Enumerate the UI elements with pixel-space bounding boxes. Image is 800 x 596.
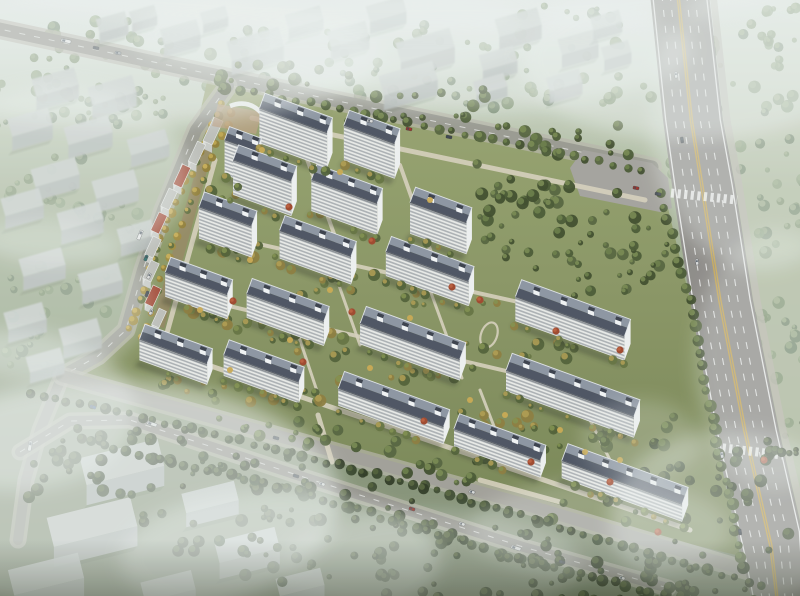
aerial-rendering [0,0,800,596]
rendering-canvas [0,0,800,596]
fog-haze-overlay [0,0,800,596]
